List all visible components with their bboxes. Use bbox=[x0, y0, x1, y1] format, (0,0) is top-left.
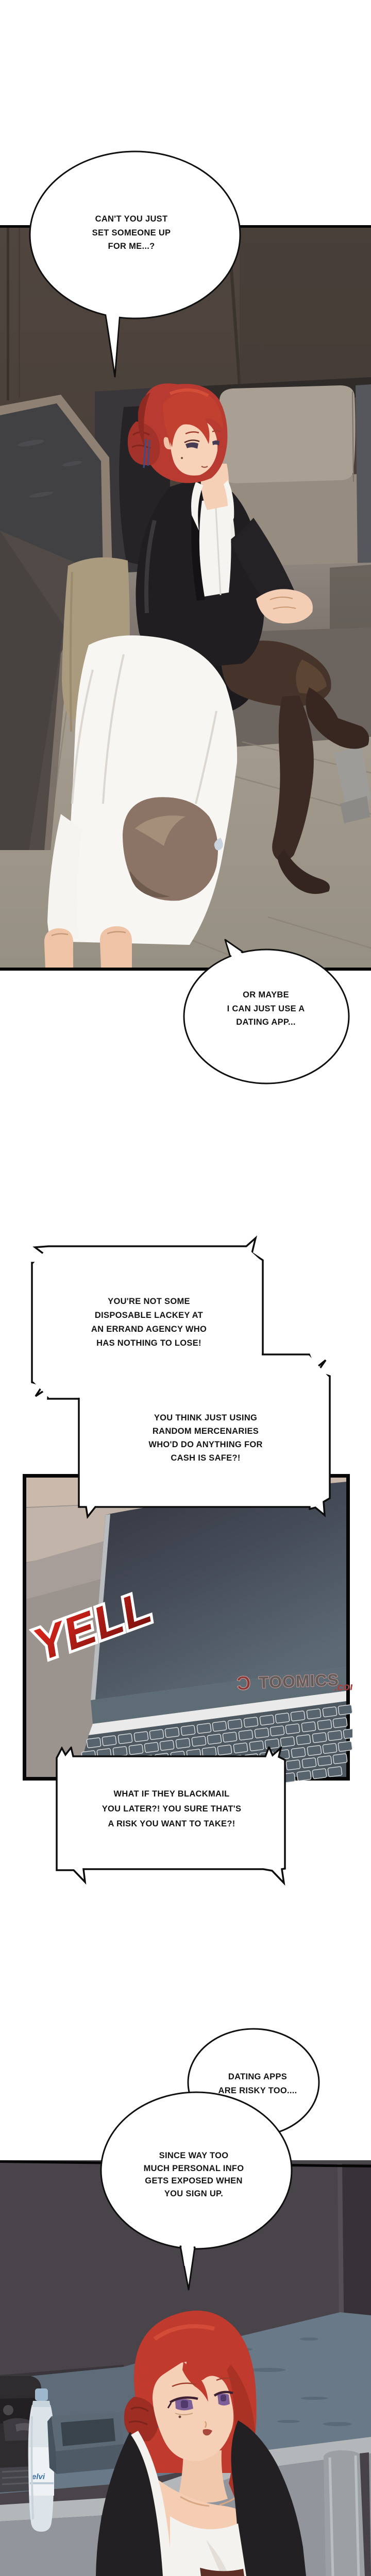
svg-text:TOOMICS: TOOMICS bbox=[259, 1670, 340, 1691]
svg-text:elvi: elvi bbox=[32, 2472, 45, 2481]
svg-text:Ɔ: Ɔ bbox=[236, 1672, 251, 1694]
svg-text:.com: .com bbox=[334, 1681, 352, 1693]
